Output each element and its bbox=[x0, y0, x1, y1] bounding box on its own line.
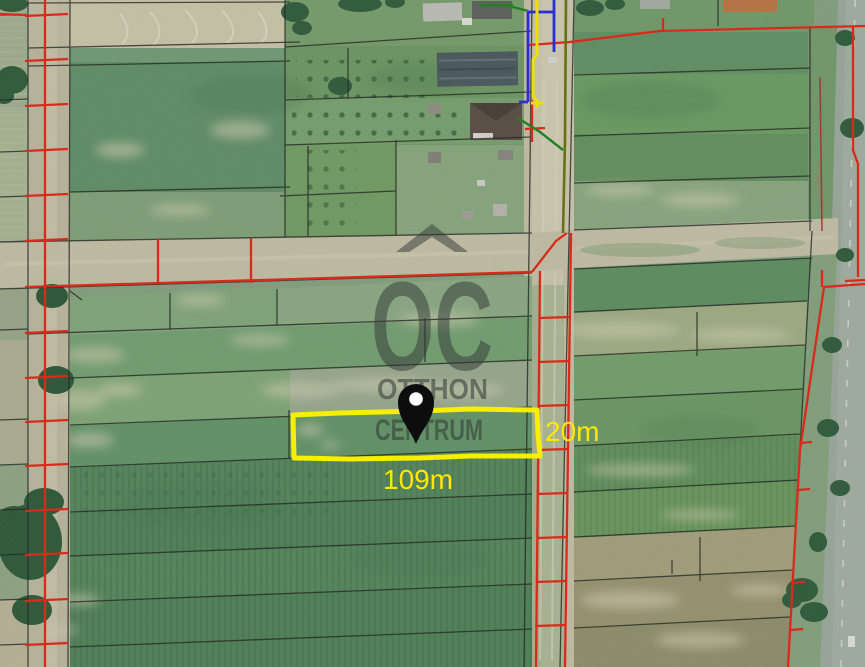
aerial-imagery: OC OTTHON CENTRUM 20m 109m bbox=[0, 0, 865, 667]
dimension-label-width: 20m bbox=[545, 416, 599, 447]
satellite-map-canvas[interactable]: OC OTTHON CENTRUM 20m 109m bbox=[0, 0, 865, 667]
dimension-label-length: 109m bbox=[383, 464, 453, 495]
